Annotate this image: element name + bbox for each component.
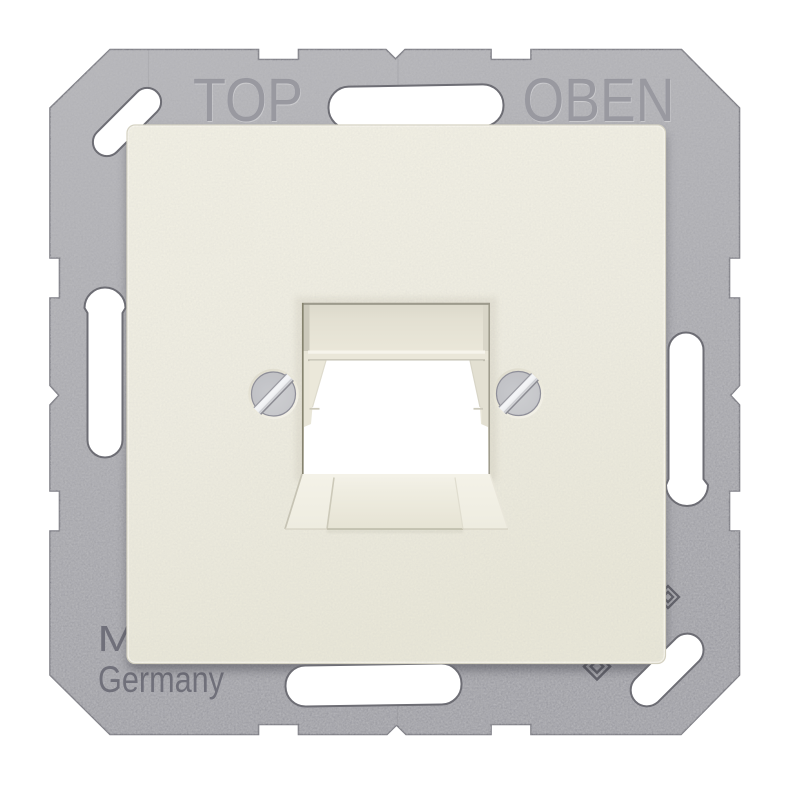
svg-text:OBEN: OBEN: [523, 66, 675, 134]
svg-text:TOP: TOP: [193, 66, 303, 134]
